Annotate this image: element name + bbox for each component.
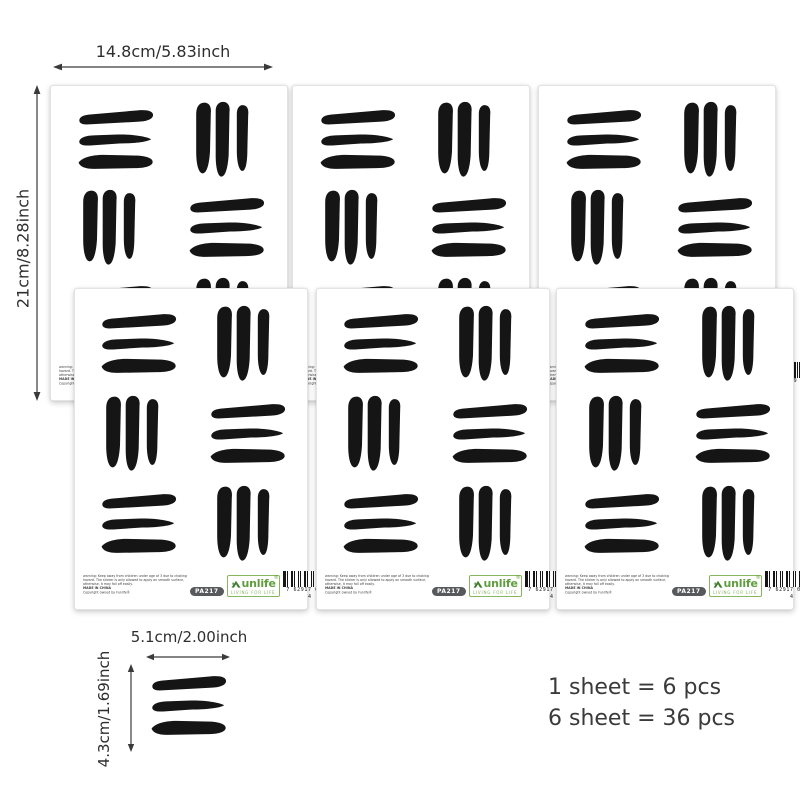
registered-mark-icon: ® <box>516 576 521 581</box>
sheet-footer: warning: Keep away from children under a… <box>75 569 307 609</box>
strokes-group-horizontal <box>676 389 781 479</box>
strokes-group-horizontal <box>569 299 674 389</box>
strokes-group-vertical <box>192 479 295 569</box>
strokes-group-vertical <box>329 389 432 479</box>
brand-tagline: LIVING FOR LIFE <box>713 590 758 595</box>
brand-logo: unlife ® LIVING FOR LIFE <box>709 575 762 597</box>
copyright-label: Copyright owned by Funlife® <box>83 591 187 595</box>
sticker-sheet: warning: Keep away from children under a… <box>556 288 794 610</box>
sku-badge: PA217 <box>432 587 466 596</box>
strokes-group-horizontal <box>569 479 674 569</box>
brush-stroke-pattern <box>557 289 793 569</box>
strokes-group-vertical <box>551 184 656 272</box>
brush-stroke-pattern <box>317 289 549 569</box>
piece-height-label: 4.3cm/1.69inch <box>95 649 113 769</box>
sku-badge: PA217 <box>190 587 224 596</box>
warning-text-block: warning: Keep away from children under a… <box>565 574 669 598</box>
brand-name: unlife <box>484 578 518 589</box>
strokes-group-horizontal <box>87 479 190 569</box>
pcs-count-block: 1 sheet = 6 pcs 6 sheet = 36 pcs <box>548 672 735 734</box>
strokes-group-horizontal <box>192 389 295 479</box>
piece-width-double-arrow-icon <box>146 652 230 662</box>
strokes-group-vertical <box>412 96 517 184</box>
copyright-label: Copyright owned by Funlife® <box>325 591 429 595</box>
sheet-width-double-arrow-icon <box>53 62 273 72</box>
sheet-footer: warning: Keep away from children under a… <box>557 569 793 609</box>
barcode-bars <box>765 571 800 587</box>
sku-badge: PA217 <box>672 587 706 596</box>
sheet-width-label: 14.8cm/5.83inch <box>53 42 273 61</box>
strokes-group-horizontal <box>434 389 537 479</box>
strokes-group-vertical <box>676 299 781 389</box>
barcode-digits: 7 62917 06189 4 <box>765 587 800 601</box>
brand-name: unlife <box>724 578 758 589</box>
strokes-group-vertical <box>676 479 781 569</box>
strokes-group-horizontal <box>658 184 763 272</box>
warning-text-block: warning: Keep away from children under a… <box>83 574 187 598</box>
sheet-height-label: 21cm/8.28inch <box>14 189 33 309</box>
pcs-count-line-2: 6 sheet = 36 pcs <box>548 703 735 734</box>
brand-logo: unlife ® LIVING FOR LIFE <box>469 575 522 597</box>
strokes-group-vertical <box>434 479 537 569</box>
strokes-group-vertical <box>87 389 190 479</box>
strokes-group-vertical <box>658 96 763 184</box>
sheet-height-double-arrow-icon <box>32 85 42 401</box>
brand-tagline: LIVING FOR LIFE <box>473 590 518 595</box>
pcs-count-line-1: 1 sheet = 6 pcs <box>548 672 735 703</box>
brand-tagline: LIVING FOR LIFE <box>231 590 276 595</box>
strokes-group-horizontal <box>551 96 656 184</box>
strokes-group-vertical <box>434 299 537 389</box>
brush-stroke-pattern <box>75 289 307 569</box>
strokes-group-vertical <box>170 96 275 184</box>
strokes-group-vertical <box>63 184 168 272</box>
house-roof-icon <box>231 579 241 589</box>
sample-strokes-group <box>147 674 231 738</box>
sticker-sheet: warning: Keep away from children under a… <box>316 288 550 610</box>
strokes-group-vertical <box>569 389 674 479</box>
house-roof-icon <box>473 579 483 589</box>
copyright-label: Copyright owned by Funlife® <box>565 591 669 595</box>
strokes-group-vertical <box>305 184 410 272</box>
brand-name: unlife <box>242 578 276 589</box>
strokes-group-horizontal <box>63 96 168 184</box>
strokes-group-horizontal <box>87 299 190 389</box>
brand-logo: unlife ® LIVING FOR LIFE <box>227 575 280 597</box>
strokes-group-vertical <box>192 299 295 389</box>
strokes-group-horizontal <box>412 184 517 272</box>
strokes-group-horizontal <box>170 184 275 272</box>
sticker-sheet: warning: Keep away from children under a… <box>74 288 308 610</box>
strokes-group-horizontal <box>329 479 432 569</box>
strokes-group-horizontal <box>329 299 432 389</box>
house-roof-icon <box>713 579 723 589</box>
piece-height-double-arrow-icon <box>126 664 136 752</box>
registered-mark-icon: ® <box>274 576 279 581</box>
piece-width-label: 5.1cm/2.00inch <box>129 628 249 646</box>
registered-mark-icon: ® <box>756 576 761 581</box>
strokes-group-horizontal <box>305 96 410 184</box>
barcode: 7 62917 06189 4 <box>765 571 800 601</box>
product-spec-image: 14.8cm/5.83inch 21cm/8.28inch warning: K… <box>0 0 800 800</box>
warning-text-block: warning: Keep away from children under a… <box>325 574 429 598</box>
sheet-footer: warning: Keep away from children under a… <box>317 569 549 609</box>
